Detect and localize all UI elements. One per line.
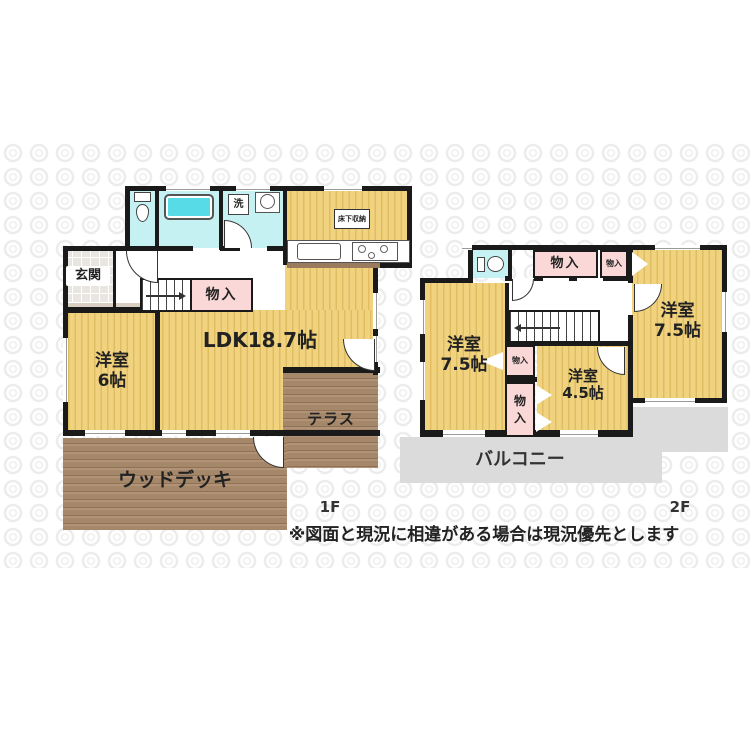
stove-icon	[352, 242, 398, 261]
wall	[375, 263, 412, 268]
window	[216, 430, 250, 436]
window	[166, 186, 210, 191]
wall	[155, 307, 160, 432]
wall	[113, 250, 116, 310]
bedroom-left-size: 7.5帖	[425, 356, 503, 376]
wall	[420, 278, 472, 283]
burner-icon	[380, 245, 388, 253]
window	[645, 398, 695, 403]
stairs-direction-arrow	[514, 324, 521, 332]
bedroom-left-label: 洋室 7.5帖	[425, 336, 503, 380]
burner-icon	[368, 252, 375, 259]
wall	[508, 250, 512, 278]
wood-deck-label: ウッドデッキ	[105, 469, 245, 493]
bedroom6-name: 洋室	[72, 352, 152, 372]
bedroom-right-name: 洋室	[635, 302, 720, 322]
wall	[63, 246, 129, 251]
bedroom-center-name: 洋室	[538, 368, 628, 385]
bedroom-center-size: 4.5帖	[538, 385, 628, 402]
window	[443, 430, 485, 437]
window	[373, 293, 378, 329]
f2-storage-b: 物入	[600, 250, 628, 278]
window	[85, 430, 125, 436]
window	[462, 245, 472, 250]
window	[560, 430, 598, 437]
window	[655, 245, 700, 250]
toilet-tank-icon	[134, 192, 151, 202]
window	[420, 300, 425, 334]
kitchen-sink-icon	[297, 243, 341, 260]
wall	[468, 245, 473, 283]
bedroom-right-size: 7.5帖	[635, 322, 720, 342]
window	[63, 338, 68, 402]
f2-storage-d: 物入	[505, 382, 535, 437]
floor2-label: 2F	[660, 499, 700, 517]
stairs	[508, 310, 600, 343]
f2-storage-c: 物入	[505, 345, 535, 377]
balcony-label: バルコニー	[455, 448, 585, 472]
bedroom6-label: 洋室 6帖	[72, 352, 152, 396]
burner-icon	[358, 245, 366, 253]
underfloor-storage-label: 床下収納	[334, 209, 370, 229]
washing-machine-icon: 洗	[228, 194, 249, 215]
floor-plan-page: { "colors": { "room_yellow": "#F1D37F", …	[0, 0, 750, 750]
wall	[125, 186, 130, 250]
stairs-direction-line	[146, 295, 180, 297]
bathtub-icon	[164, 194, 214, 220]
f1-storage-closet: 物入	[190, 278, 253, 312]
window	[722, 292, 727, 332]
window	[236, 186, 270, 191]
wall	[267, 246, 285, 251]
wall	[155, 188, 159, 250]
stairs-direction-arrow	[179, 292, 186, 300]
wall	[505, 276, 512, 281]
sink-basin-icon	[260, 194, 275, 209]
floor1-label: 1F	[310, 499, 350, 517]
bedroom-center-label: 洋室 4.5帖	[538, 368, 628, 408]
f2-storage-a: 物入	[533, 250, 598, 278]
disclaimer-note: ※図面と現況に相違がある場合は現況優先とします	[234, 524, 734, 548]
bedroom6-size: 6帖	[72, 372, 152, 392]
ldk-label: LDK18.7帖	[185, 327, 335, 353]
toilet-bowl-icon	[487, 256, 504, 272]
window	[162, 430, 186, 436]
bedroom-right-label: 洋室 7.5帖	[635, 302, 720, 346]
bedroom-left-name: 洋室	[425, 336, 503, 356]
wall	[219, 188, 223, 250]
wall	[628, 315, 633, 435]
stairs	[140, 278, 192, 312]
toilet-tank-icon	[477, 257, 485, 272]
window	[324, 186, 362, 191]
terrace-label: テラス	[300, 409, 362, 431]
genkan-label: 玄関	[66, 266, 110, 286]
stairs-direction-line	[520, 327, 560, 329]
kitchen-counter-edge	[287, 263, 380, 268]
